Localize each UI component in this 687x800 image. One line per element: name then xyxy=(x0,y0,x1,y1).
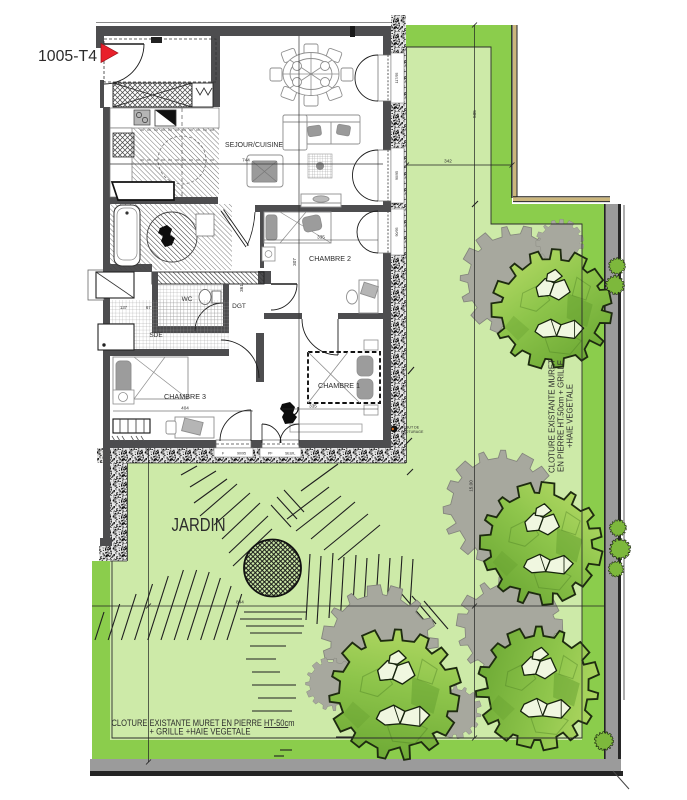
svg-text:117/95: 117/95 xyxy=(395,73,399,84)
svg-text:CHAMBRE 2: CHAMBRE 2 xyxy=(309,254,351,263)
svg-text:CHAMBRE 1: CHAMBRE 1 xyxy=(318,381,360,390)
svg-text:SDE: SDE xyxy=(149,332,163,339)
svg-text:15.00: 15.00 xyxy=(469,480,474,492)
svg-text:342: 342 xyxy=(444,159,452,164)
svg-text:404: 404 xyxy=(181,406,189,411)
svg-text:505: 505 xyxy=(472,110,477,118)
svg-text:67: 67 xyxy=(146,305,151,310)
svg-text:137: 137 xyxy=(120,305,128,310)
svg-text:PF: PF xyxy=(268,452,273,456)
svg-text:1005-T4: 1005-T4 xyxy=(38,48,97,65)
svg-text:DGT: DGT xyxy=(232,303,246,310)
svg-text:90/95: 90/95 xyxy=(237,452,246,456)
svg-text:+ GRILLE +HAIE VEGETALE: + GRILLE +HAIE VEGETALE xyxy=(150,727,251,738)
svg-text:EN PIERRE HT.50cm + GRILLE: EN PIERRE HT.50cm + GRILLE xyxy=(557,360,566,472)
svg-text:844: 844 xyxy=(236,600,244,605)
svg-text:307: 307 xyxy=(292,258,297,266)
svg-text:90/95: 90/95 xyxy=(395,171,399,180)
svg-text:CLOTURE EXISTANTE MURET: CLOTURE EXISTANTE MURET xyxy=(548,359,557,473)
svg-text:744: 744 xyxy=(242,158,250,163)
svg-text:+HAIE VEGETALE: +HAIE VEGETALE xyxy=(566,384,575,448)
svg-text:SEUIL: SEUIL xyxy=(285,452,295,456)
svg-text:CLOTURAGE: CLOTURAGE xyxy=(401,430,424,434)
svg-text:90/95: 90/95 xyxy=(395,228,399,237)
svg-text:SEJOUR/CUISINE: SEJOUR/CUISINE xyxy=(225,142,283,149)
svg-text:335: 335 xyxy=(309,404,317,409)
svg-text:335: 335 xyxy=(317,235,325,240)
svg-text:CHAMBRE 3: CHAMBRE 3 xyxy=(164,392,206,401)
svg-text:361: 361 xyxy=(239,284,244,292)
svg-text:JARDIN: JARDIN xyxy=(172,515,226,535)
